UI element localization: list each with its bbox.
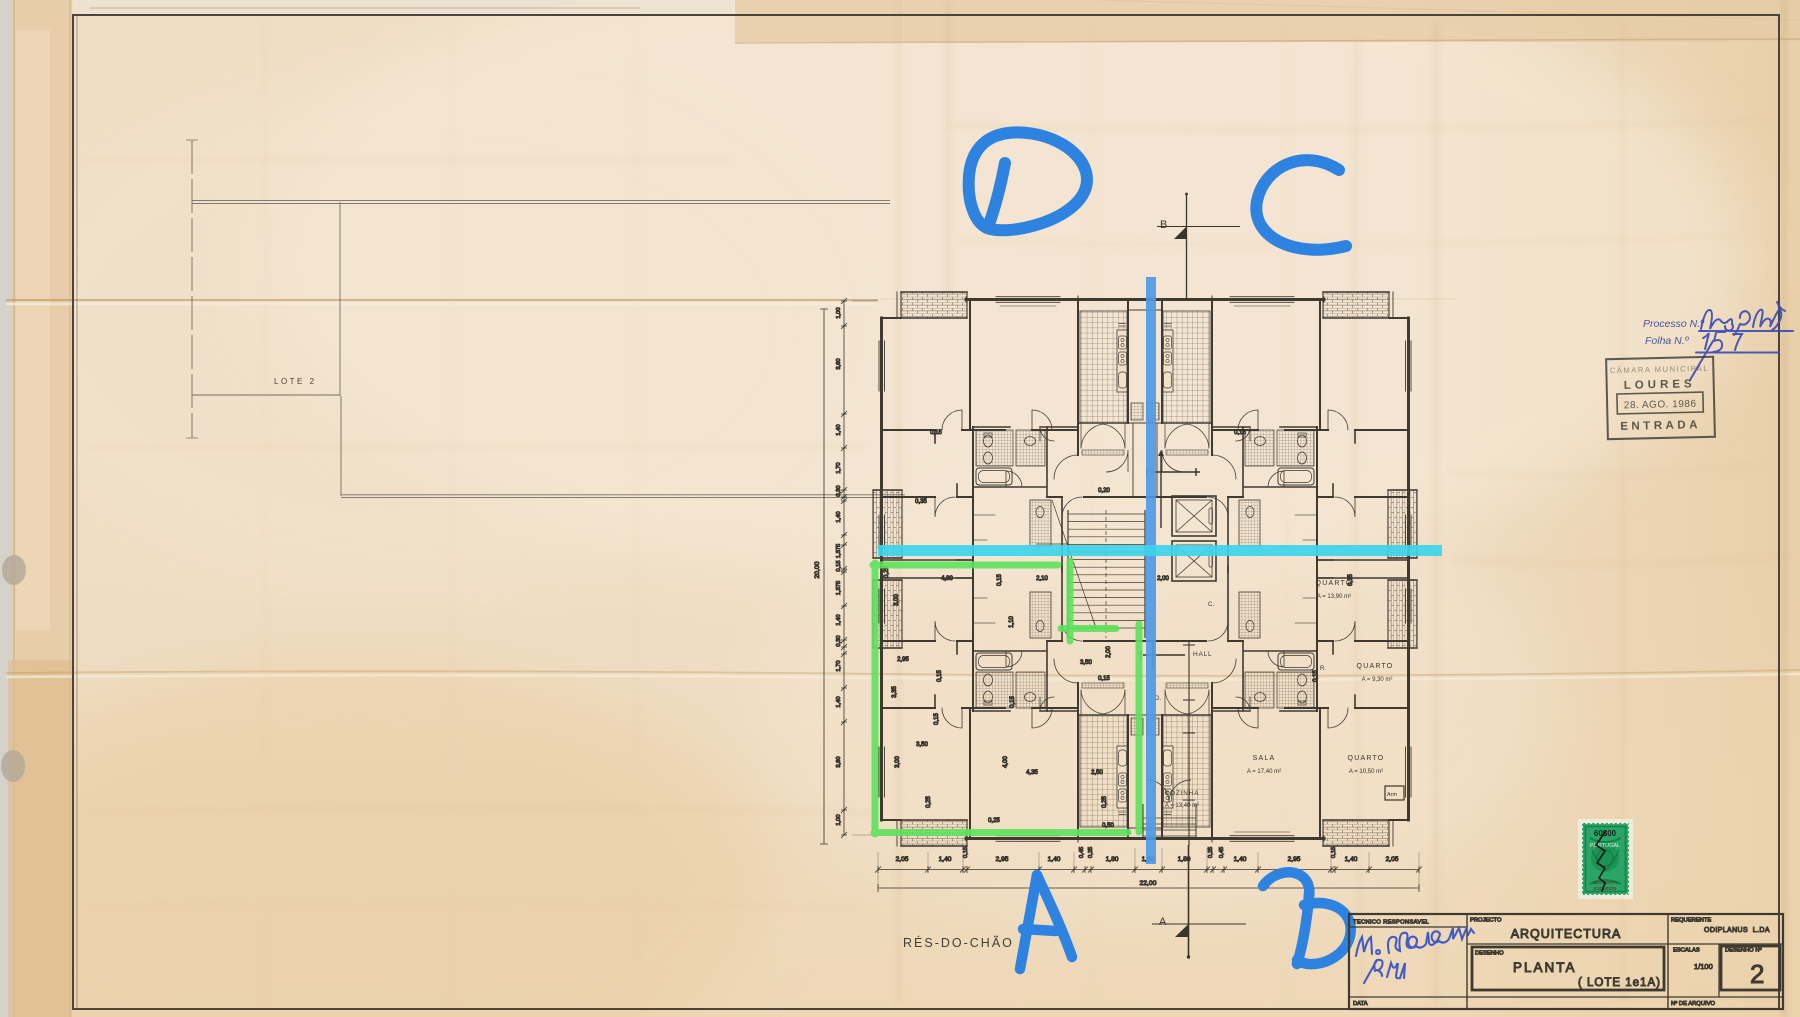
svg-text:A = 17,40 m²: A = 17,40 m² — [1247, 769, 1281, 775]
svg-text:2,95: 2,95 — [996, 856, 1009, 863]
svg-text:2,05: 2,05 — [896, 856, 909, 863]
svg-text:3,60: 3,60 — [836, 358, 842, 369]
svg-text:20,00: 20,00 — [814, 561, 821, 578]
svg-text:1,40: 1,40 — [939, 856, 952, 863]
svg-text:SALA: SALA — [1253, 755, 1276, 762]
svg-text:QUARTO: QUARTO — [1316, 580, 1353, 587]
svg-text:3,00: 3,00 — [894, 594, 900, 606]
svg-text:0,20: 0,20 — [1098, 488, 1110, 494]
svg-text:4,35: 4,35 — [1026, 770, 1038, 776]
svg-text:0,15: 0,15 — [934, 713, 940, 725]
svg-text:0,15: 0,15 — [1098, 676, 1110, 682]
svg-text:QUARTO: QUARTO — [1357, 663, 1394, 670]
svg-text:PORTUGAL: PORTUGAL — [1590, 843, 1620, 849]
svg-text:2,95: 2,95 — [897, 657, 909, 663]
svg-text:1,40: 1,40 — [1048, 856, 1061, 863]
svg-text:Arm: Arm — [1387, 792, 1398, 798]
svg-text:REQUERENTE: REQUERENTE — [1671, 918, 1711, 924]
svg-text:3,35: 3,35 — [892, 686, 898, 698]
svg-text:1/100: 1/100 — [1694, 962, 1713, 971]
svg-text:2,10: 2,10 — [1036, 576, 1048, 582]
svg-text:60$00: 60$00 — [1594, 829, 1617, 838]
svg-text:B: B — [1160, 219, 1167, 231]
svg-text:A = 13,40 m²: A = 13,40 m² — [1165, 803, 1199, 809]
svg-text:A: A — [1159, 916, 1167, 928]
svg-text:2,05: 2,05 — [1386, 856, 1399, 863]
svg-text:1,10: 1,10 — [1009, 616, 1015, 628]
svg-text:PLANTA: PLANTA — [1513, 960, 1577, 975]
svg-text:0,15: 0,15 — [930, 430, 942, 436]
svg-text:HALL: HALL — [1193, 651, 1212, 658]
svg-text:0,25: 0,25 — [1102, 796, 1108, 808]
svg-text:1,70: 1,70 — [836, 462, 842, 473]
svg-text:0,25: 0,25 — [1088, 847, 1094, 858]
svg-text:0,15: 0,15 — [1313, 670, 1319, 682]
svg-text:A = 10,50 m²: A = 10,50 m² — [1349, 769, 1383, 775]
svg-text:A = 9,30 m²: A = 9,30 m² — [1362, 677, 1393, 683]
svg-text:1,80: 1,80 — [1106, 856, 1119, 863]
svg-text:3,60: 3,60 — [836, 756, 842, 767]
svg-text:22,00: 22,00 — [1139, 880, 1156, 887]
svg-text:1,375: 1,375 — [836, 544, 842, 559]
svg-text:2,50: 2,50 — [1091, 770, 1103, 776]
svg-text:Folha N.º: Folha N.º — [1645, 335, 1690, 347]
svg-text:ESCUDOS: ESCUDOS — [1594, 886, 1617, 891]
svg-text:DESENHO: DESENHO — [1475, 951, 1504, 957]
svg-text:1,00: 1,00 — [836, 814, 842, 825]
svg-text:4,30: 4,30 — [941, 576, 953, 582]
svg-text:1,70: 1,70 — [836, 660, 842, 671]
svg-text:0,30: 0,30 — [836, 635, 842, 646]
svg-text:2: 2 — [1750, 959, 1764, 989]
svg-text:1,40: 1,40 — [1345, 856, 1358, 863]
svg-text:1,40: 1,40 — [836, 696, 842, 707]
svg-text:0,15: 0,15 — [997, 574, 1003, 586]
svg-text:2,95: 2,95 — [1288, 856, 1301, 863]
svg-text:1,375: 1,375 — [836, 581, 842, 596]
svg-text:0,15: 0,15 — [963, 847, 969, 858]
svg-text:1,40: 1,40 — [836, 511, 842, 522]
svg-text:COZINHA: COZINHA — [1165, 790, 1200, 797]
svg-text:Nº DE ARQUIVO: Nº DE ARQUIVO — [1671, 1000, 1715, 1007]
svg-text:0,15: 0,15 — [1010, 696, 1016, 708]
svg-text:DESENHO Nº: DESENHO Nº — [1725, 947, 1762, 954]
svg-text:( LOTE 1e1A): ( LOTE 1e1A) — [1578, 977, 1661, 989]
svg-text:0,45: 0,45 — [1219, 847, 1225, 858]
svg-text:TECNICO RESPONSAVEL: TECNICO RESPONSAVEL — [1353, 920, 1430, 926]
svg-text:3,50: 3,50 — [916, 742, 928, 748]
svg-text:ODIPLANUS L.DA: ODIPLANUS L.DA — [1704, 927, 1770, 934]
svg-text:3,00: 3,00 — [895, 756, 901, 768]
svg-text:1,40: 1,40 — [836, 614, 842, 625]
svg-text:0,45: 0,45 — [1079, 847, 1085, 858]
svg-text:QUARTO: QUARTO — [1348, 755, 1385, 762]
svg-text:LOURES: LOURES — [1624, 378, 1696, 392]
svg-text:0,25: 0,25 — [988, 818, 1000, 824]
svg-text:1,40: 1,40 — [1234, 856, 1247, 863]
svg-text:3,50: 3,50 — [1080, 660, 1092, 666]
svg-text:1,80: 1,80 — [1178, 856, 1191, 863]
svg-text:C.: C. — [1208, 602, 1214, 608]
svg-text:0,30: 0,30 — [836, 485, 842, 496]
svg-text:LOTE 2: LOTE 2 — [274, 377, 317, 386]
svg-text:4,00: 4,00 — [1003, 756, 1009, 768]
svg-text:ESCALAS: ESCALAS — [1673, 948, 1700, 954]
svg-text:R.: R. — [1320, 666, 1326, 672]
svg-text:0,15: 0,15 — [836, 560, 842, 571]
svg-text:1,00: 1,00 — [836, 307, 842, 318]
svg-text:28. AGO. 1986: 28. AGO. 1986 — [1624, 399, 1697, 412]
svg-text:0,50: 0,50 — [1102, 823, 1114, 829]
svg-text:0,35: 0,35 — [915, 499, 927, 505]
svg-text:1,40: 1,40 — [836, 424, 842, 435]
svg-text:0,15: 0,15 — [937, 670, 943, 682]
svg-text:ARQUITECTURA: ARQUITECTURA — [1511, 927, 1622, 941]
svg-text:0,25: 0,25 — [926, 796, 932, 808]
svg-text:ENTRADA: ENTRADA — [1620, 419, 1701, 433]
svg-text:Processo N.º: Processo N.º — [1643, 318, 1705, 330]
svg-text:2,00: 2,00 — [1106, 646, 1112, 658]
svg-text:A = 13,90 m²: A = 13,90 m² — [1317, 594, 1351, 600]
svg-text:0,25: 0,25 — [1208, 847, 1214, 858]
svg-text:PROJECTO: PROJECTO — [1470, 918, 1502, 924]
svg-text:RÉS-DO-CHÃO: RÉS-DO-CHÃO — [903, 935, 1014, 950]
svg-text:2,00: 2,00 — [1157, 576, 1169, 582]
svg-text:0,15: 0,15 — [1331, 847, 1337, 858]
svg-text:DATA: DATA — [1353, 1001, 1368, 1007]
svg-text:0,15: 0,15 — [1234, 430, 1246, 436]
